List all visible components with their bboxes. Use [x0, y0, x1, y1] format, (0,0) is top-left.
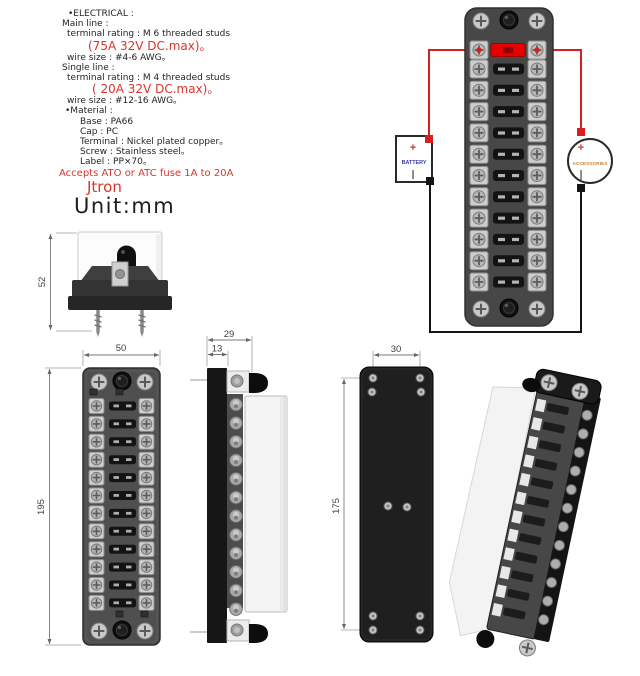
- mounting-screws: [95, 310, 146, 337]
- main-fuse-row: [470, 41, 546, 59]
- screw-terminal: [470, 273, 488, 291]
- screw-terminal: [139, 524, 154, 539]
- screw-terminal: [89, 560, 104, 575]
- screw-terminal: [139, 434, 154, 449]
- top-stud: [249, 373, 268, 393]
- fuse: [109, 437, 136, 446]
- screw-terminal: [139, 578, 154, 593]
- screw-terminal: [528, 209, 546, 227]
- screw-terminal: [89, 470, 104, 485]
- stud-terminal: [500, 11, 518, 29]
- dim-175: 175: [331, 498, 342, 514]
- accessories-plus: +: [578, 142, 584, 154]
- screw-head: [230, 491, 243, 504]
- cover-side-view: 52: [37, 232, 172, 337]
- screw-terminal: [528, 124, 546, 142]
- screw-head: [230, 547, 243, 560]
- dim-30: 30: [391, 344, 402, 355]
- fuse: [109, 491, 136, 500]
- screw-terminal: [89, 578, 104, 593]
- stud-terminal: [500, 299, 518, 317]
- dim-50: 50: [116, 343, 127, 354]
- fuse: [109, 419, 136, 428]
- bottom-stud: [249, 624, 268, 643]
- screw-terminal: [470, 103, 488, 121]
- page: •ELECTRICAL :Main line :terminal rating …: [0, 0, 640, 676]
- battery-label: BATTERY: [402, 160, 427, 166]
- dim-13: 13: [212, 344, 223, 355]
- screw-terminal: [470, 252, 488, 270]
- stud-terminal: [113, 372, 131, 390]
- fuse: [109, 509, 136, 518]
- screw-head: [230, 566, 243, 579]
- screw-terminal: [89, 506, 104, 521]
- screw-icon: [91, 623, 107, 639]
- screw-terminal: [139, 595, 154, 610]
- screw-terminal: [528, 103, 546, 121]
- fuse: [493, 127, 524, 138]
- screw-terminal: [89, 524, 104, 539]
- screw-terminal: [528, 167, 546, 185]
- screw-terminal: [89, 399, 104, 414]
- screw-terminal: [139, 506, 154, 521]
- screw-terminal: [89, 434, 104, 449]
- screw-icon: [518, 638, 537, 657]
- screw-terminal: [470, 230, 488, 248]
- back-view: 30 175: [331, 344, 433, 642]
- screw-terminal: [470, 209, 488, 227]
- screw-terminal: [139, 542, 154, 557]
- screw-head: [230, 417, 243, 430]
- fuse: [109, 545, 136, 554]
- accessories-symbol: + ACCESSORIES: [568, 128, 612, 192]
- screw-head: [230, 584, 243, 597]
- screw-icon: [91, 374, 107, 390]
- fuse: [493, 277, 524, 288]
- fuse: [493, 191, 524, 202]
- screw-head: [230, 603, 243, 616]
- screw-terminal: [528, 252, 546, 270]
- screw-terminal: [139, 470, 154, 485]
- screw-head: [230, 398, 243, 411]
- isometric-view: [438, 359, 605, 661]
- screw-icon: [529, 301, 545, 317]
- screw-icon: [137, 374, 153, 390]
- screw-icon: [529, 13, 545, 29]
- front-view: 50 195: [36, 343, 160, 645]
- screw-terminal: [528, 273, 546, 291]
- screw-terminal: [470, 188, 488, 206]
- screw-terminal: [528, 145, 546, 163]
- fuse: [109, 473, 136, 482]
- side-profile-view: 29 13: [190, 329, 287, 643]
- screw-terminal: [139, 560, 154, 575]
- stud-terminal: [113, 621, 131, 639]
- screw-terminal: [89, 488, 104, 503]
- accessories-label: ACCESSORIES: [573, 161, 609, 167]
- screw-terminal: [470, 167, 488, 185]
- screw-terminal: [139, 416, 154, 431]
- fuse: [109, 598, 136, 607]
- screw-terminal: [470, 81, 488, 99]
- fuse: [109, 581, 136, 590]
- fuse: [493, 170, 524, 181]
- fuse: [109, 563, 136, 572]
- screw-head: [230, 454, 243, 467]
- screw-terminal: [470, 124, 488, 142]
- dim-195: 195: [36, 499, 47, 515]
- screw-terminal: [528, 81, 546, 99]
- screw-head: [230, 510, 243, 523]
- screw-terminal: [139, 488, 154, 503]
- screw-terminal: [139, 452, 154, 467]
- fuse: [493, 234, 524, 245]
- screw-terminal: [139, 399, 154, 414]
- fuse: [493, 106, 524, 117]
- screw-head: [230, 435, 243, 448]
- screw-icon: [473, 301, 489, 317]
- fuse: [109, 455, 136, 464]
- dim-52: 52: [37, 277, 48, 288]
- screw-icon: [137, 623, 153, 639]
- screw-terminal: [528, 230, 546, 248]
- dim-29: 29: [224, 329, 235, 340]
- screw-terminal: [89, 595, 104, 610]
- screw-terminal: [89, 452, 104, 467]
- fuse: [493, 255, 524, 266]
- fuse: [493, 213, 524, 224]
- screw-icon: [473, 13, 489, 29]
- fuse: [109, 527, 136, 536]
- screw-terminal: [528, 188, 546, 206]
- fuse: [109, 402, 136, 411]
- battery-symbol: + BATTERY: [396, 135, 434, 185]
- screw-terminal: [528, 60, 546, 78]
- screw-terminal: [89, 416, 104, 431]
- screw-head: [230, 528, 243, 541]
- screw-terminal: [470, 60, 488, 78]
- wiring-diagram: + BATTERY + ACCESSORIES: [396, 8, 612, 332]
- back-body: [360, 367, 433, 642]
- technical-drawing: + BATTERY + ACCESSORIES 52: [0, 0, 640, 676]
- wiring-fuse-rows: [470, 60, 546, 291]
- screw-head: [230, 473, 243, 486]
- fuse: [493, 64, 524, 75]
- screw-terminal: [470, 145, 488, 163]
- side-base-plate: [207, 368, 227, 643]
- battery-plus: +: [410, 142, 416, 154]
- fuse: [493, 85, 524, 96]
- fuse: [493, 149, 524, 160]
- screw-terminal: [89, 542, 104, 557]
